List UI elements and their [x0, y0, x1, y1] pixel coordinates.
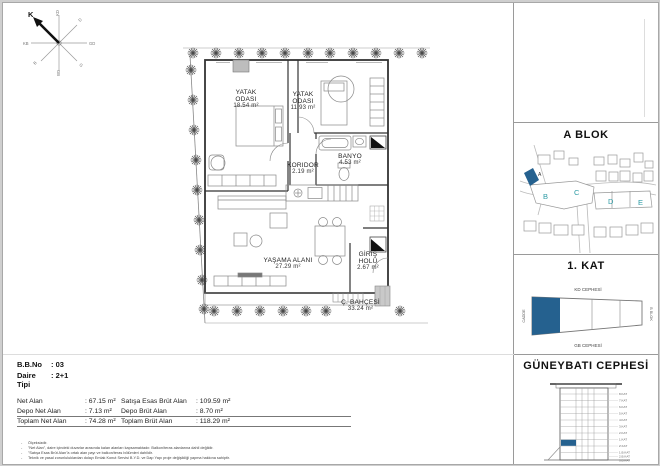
- toplam-brut-label: Toplam Brüt Alan: [121, 418, 172, 425]
- sidebar-divider: [513, 3, 514, 464]
- room-label-yatak1: YATAKODASI 18.54 m²: [218, 89, 274, 111]
- panel-sep-3: [514, 354, 658, 355]
- highlighted-unit: [532, 297, 560, 335]
- table-rule-2: [17, 426, 351, 427]
- room-label-koridor: KORIDOR 2.19 m²: [278, 162, 328, 176]
- bedroom2-furniture: [321, 76, 384, 126]
- svg-text:3.KAT: 3.KAT: [619, 425, 627, 429]
- toplam-net-value: : 74.28 m²: [85, 418, 116, 425]
- daire-tipi-value: : 2+1: [51, 371, 68, 389]
- floor-plan-sheet: K KD D GD G GB B KB: [2, 2, 659, 465]
- bedroom1-furniture: [208, 106, 283, 186]
- keyplan-top-label: KD CEPHESİ: [574, 286, 601, 292]
- panel-sep-2: [514, 254, 658, 255]
- compass-label-sw: GB: [56, 70, 61, 76]
- section-marker-top: [371, 137, 385, 148]
- daire-tipi-line: Daire Tipi : 2+1: [17, 371, 68, 389]
- bb-no-label: B.B.No: [17, 360, 51, 369]
- key-plan: KD CEPHESİ GB CEPHESİ CADDE B BLOK: [516, 275, 658, 353]
- satis-brut-value: : 109.59 m²: [196, 398, 230, 405]
- info-divider: [3, 354, 514, 355]
- room-label-giris: GİRİŞHOLÜ 2.67 m²: [346, 251, 390, 273]
- svg-text:2.KAT: 2.KAT: [619, 431, 627, 435]
- compass-label-e: D: [77, 17, 83, 23]
- svg-text:1.KAT: 1.KAT: [619, 438, 627, 442]
- daire-tipi-label: Daire Tipi: [17, 371, 51, 389]
- facade-elevation: 8.KAT 7.KAT 6.KAT 5.KAT 4.KAT 3.KAT 2.KA…: [516, 375, 658, 463]
- keyplan-bottom-label: GB CEPHESİ: [574, 342, 602, 348]
- section-marker-bottom: [371, 239, 385, 251]
- compass-label-ne: KD: [55, 10, 60, 16]
- living-furniture: [214, 196, 287, 286]
- footnotes: -Ölçeksizdir. -"Net Alan", daire içindek…: [21, 441, 441, 461]
- keyplan-right-label: B BLOK: [649, 307, 653, 321]
- satis-brut-label: Satışa Esas Brüt Alan: [121, 398, 187, 405]
- bb-no-value: : 03: [51, 360, 64, 369]
- toplam-net-label: Toplam Net Alan: [17, 418, 67, 425]
- tree-row-top: [188, 48, 428, 59]
- site-label-c: C: [574, 188, 580, 197]
- svg-text:4.KAT: 4.KAT: [619, 418, 627, 422]
- compass-label-w: B: [32, 60, 38, 66]
- compass-label-s: G: [78, 62, 84, 68]
- depo-net-value: : 7.13 m²: [85, 408, 112, 415]
- site-label-b: B: [543, 192, 548, 201]
- svg-text:6.KAT: 6.KAT: [619, 405, 627, 409]
- room-label-banyo: BANYO 4.53 m²: [326, 153, 374, 167]
- room-label-yatak2: YATAKODASI 11.93 m²: [279, 91, 327, 113]
- svg-text:3.B.KAT: 3.B.KAT: [619, 459, 630, 463]
- svg-text:7.KAT: 7.KAT: [619, 399, 627, 403]
- toplam-brut-value: : 118.29 m²: [196, 418, 230, 425]
- keyplan-left-label: CADDE: [522, 309, 526, 323]
- kitchen-counter: [286, 185, 358, 201]
- svg-text:8.KAT: 8.KAT: [619, 392, 627, 396]
- panel-sep-1: [514, 122, 658, 123]
- room-label-yasama: YAŞAMA ALANI 27.29 m²: [248, 257, 328, 271]
- svg-text:5.KAT: 5.KAT: [619, 412, 627, 416]
- net-alan-value: : 67.15 m²: [85, 398, 116, 405]
- facade-floor-labels: 8.KAT 7.KAT 6.KAT 5.KAT 4.KAT 3.KAT 2.KA…: [619, 392, 630, 463]
- room-label-bahce: Ç. BAHÇESİ 33.24 m²: [333, 299, 388, 313]
- site-label-d: D: [608, 197, 614, 206]
- svg-text:Z.KAT: Z.KAT: [619, 444, 627, 448]
- site-plan: A B C D E: [516, 145, 658, 253]
- shaft-block: [233, 60, 249, 72]
- compass-rose: K KD D GD G GB B KB: [19, 7, 97, 77]
- net-alan-label: Net Alan: [17, 398, 43, 405]
- depo-net-label: Depo Net Alan: [17, 408, 61, 415]
- site-label-e: E: [638, 198, 643, 207]
- floor-panel-title: 1. KAT: [514, 260, 658, 272]
- footnote-line: -Teknik ve yasal zorunluluklardan dolayı…: [21, 456, 441, 461]
- facade-panel-title: GÜNEYBATI CEPHESİ: [514, 360, 658, 372]
- highlighted-floor: [561, 440, 576, 446]
- compass-label-se: GD: [89, 41, 95, 46]
- floor-plan: YATAKODASI 18.54 m² YATAKODASI 11.93 m² …: [178, 43, 463, 353]
- block-panel-title: A BLOK: [514, 129, 658, 141]
- compass-label-nw: KB: [23, 41, 29, 46]
- panel1-line: [644, 19, 645, 117]
- depo-brut-label: Depo Brüt Alan: [121, 408, 167, 415]
- site-label-a: A: [538, 172, 542, 178]
- table-row: Net Alan : 67.15 m² Satışa Esas Brüt Ala…: [17, 398, 351, 407]
- compass-label-n: K: [28, 10, 34, 19]
- depo-brut-value: : 8.70 m²: [196, 408, 223, 415]
- bb-no-line: B.B.No : 03: [17, 360, 64, 369]
